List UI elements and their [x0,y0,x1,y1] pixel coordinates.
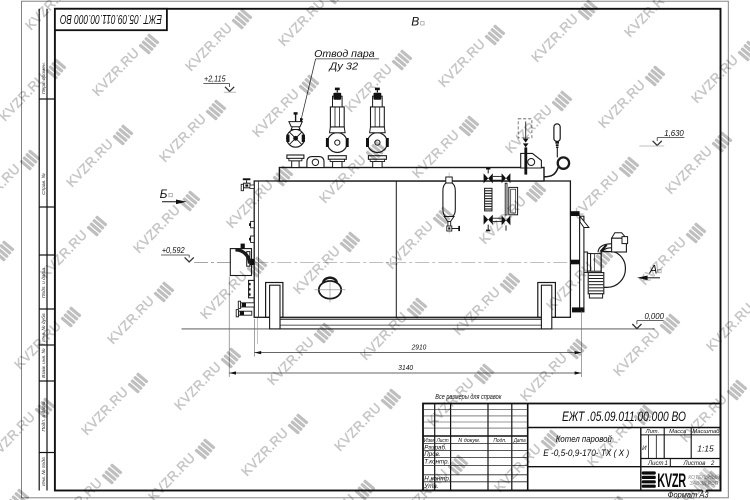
svg-text:Справ. №: Справ. № [41,173,47,195]
svg-text:1:15: 1:15 [697,443,714,453]
svg-text:0,000: 0,000 [644,312,664,321]
svg-text:ЕЖТ .05.09.011.00.000 ВО: ЕЖТ .05.09.011.00.000 ВО [60,12,162,26]
svg-text:KVZR.RU: KVZR.RU [636,234,689,288]
svg-text:KVZR.RU: KVZR.RU [264,334,317,388]
svg-text:1: 1 [665,461,668,467]
svg-text:KVZR.RU: KVZR.RU [52,475,105,500]
svg-text:KVZR.RU: KVZR.RU [491,441,544,495]
svg-text:KVZR.RU: KVZR.RU [331,400,384,454]
svg-text:KVZR.RU: KVZR.RU [703,300,750,354]
svg-text:Подп.: Подп. [493,438,506,444]
svg-text:2: 2 [710,461,715,467]
svg-text:Лит.: Лит. [645,429,660,435]
svg-text:KVZR.RU: KVZR.RU [595,77,648,131]
svg-text:Ду 32: Ду 32 [329,60,359,72]
svg-text:KVZR.RU: KVZR.RU [11,318,64,372]
svg-text:Листов: Листов [683,461,706,467]
svg-text:N докум.: N докум. [458,438,480,444]
svg-text:KVZR.RU: KVZR.RU [435,36,488,90]
svg-text:KVZR.RU: KVZR.RU [0,70,49,124]
svg-text:KVZR.RU: KVZR.RU [502,102,555,156]
svg-text:Б: Б [160,187,168,201]
svg-text:+2,115: +2,115 [204,75,226,84]
svg-text:KVZR.RU: KVZR.RU [0,161,23,215]
svg-text:+0,592: +0,592 [162,246,186,255]
svg-text:3140: 3140 [398,363,413,372]
svg-text:Лист: Лист [436,438,449,444]
svg-text:KVZR.RU: KVZR.RU [0,409,38,463]
svg-text:KVZR.RU: KVZR.RU [171,359,224,413]
svg-text:Пров.: Пров. [424,451,440,458]
svg-text:В: В [411,15,419,29]
svg-text:KVZR.RU: KVZR.RU [621,0,674,40]
svg-text:KVZR.RU: KVZR.RU [610,325,663,379]
svg-text:Инв. № подл.: Инв. № подл. [41,456,47,486]
svg-text:KVZR.RU: KVZR.RU [662,143,715,197]
svg-text:KVZR.RU: KVZR.RU [688,52,741,106]
svg-text:Т.контр.: Т.контр. [424,459,449,466]
svg-text:KVZR.RU: KVZR.RU [145,450,198,500]
svg-text:Дата: Дата [513,438,526,444]
svg-text:1,630: 1,630 [664,129,684,138]
svg-text:Отвод пара: Отвод пара [314,48,375,60]
svg-text:KVZR.RU: KVZR.RU [104,293,157,347]
svg-text:KVZR.RU: KVZR.RU [517,350,570,404]
svg-text:KVZR.RU: KVZR.RU [156,111,209,165]
svg-text:KVZR.RU: KVZR.RU [89,45,142,99]
svg-text:KVZR.RU: KVZR.RU [569,168,622,222]
svg-text:KVZR.RU: KVZR.RU [37,227,90,281]
svg-text:KVZR.RU: KVZR.RU [238,425,291,479]
svg-text:KVZR.RU: KVZR.RU [305,491,358,500]
svg-text:KVZR.RU: KVZR.RU [275,0,328,49]
svg-text:Изм: Изм [424,438,434,444]
svg-text:KVZR.RU: KVZR.RU [398,466,451,500]
svg-text:KVZR.RU: KVZR.RU [528,11,581,65]
svg-text:Взам. инв. №: Взам. инв. № [41,348,47,378]
svg-text:2910: 2910 [411,343,427,352]
svg-text:KVZR.RU: KVZR.RU [78,384,131,438]
svg-text:Лист: Лист [647,461,663,467]
svg-text:И: И [642,445,647,452]
svg-text:KVZR.RU: KVZR.RU [63,136,116,190]
svg-text:KVZR.RU: KVZR.RU [182,20,235,74]
